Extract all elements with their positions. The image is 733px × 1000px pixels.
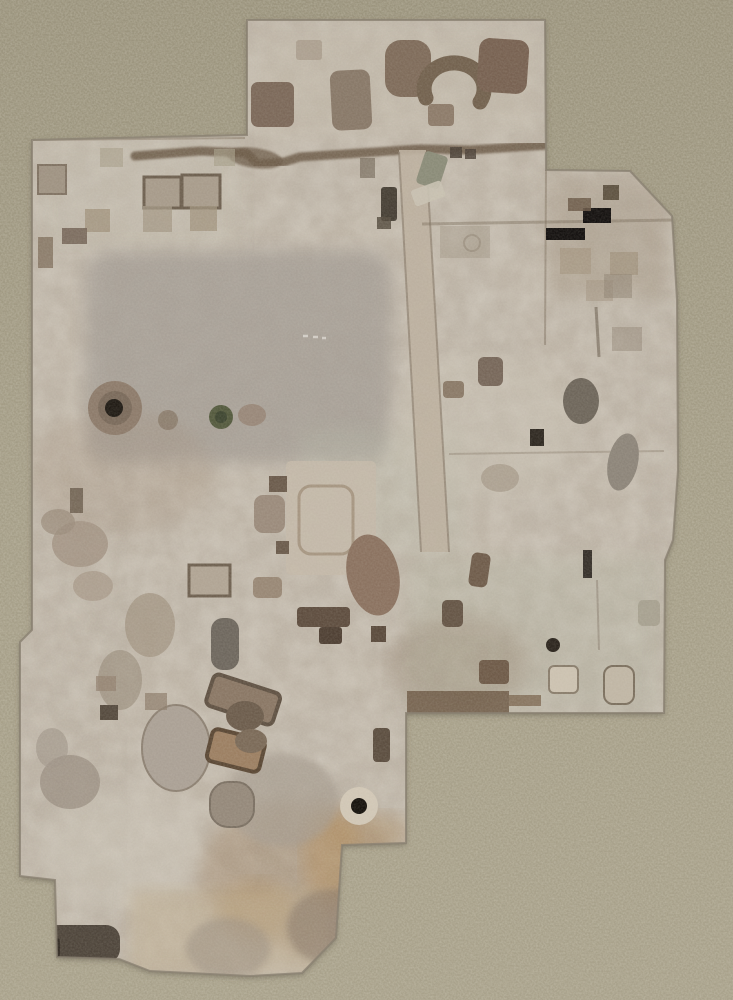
excavation-aerial-photo — [0, 0, 733, 1000]
excavation-orthophoto-canvas — [0, 0, 733, 1000]
